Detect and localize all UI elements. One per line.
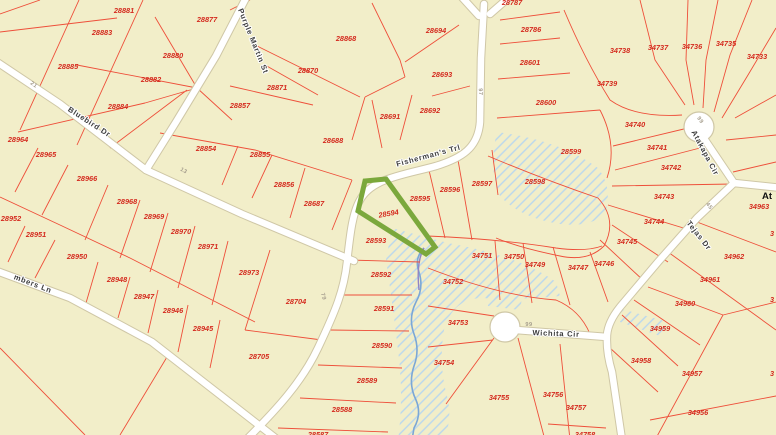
parcel-label-34758[interactable]: 34758 [575,430,596,435]
parcel-label-34749[interactable]: 34749 [525,260,546,269]
parcel-label-28588[interactable]: 28588 [331,405,353,414]
parcel-label-28786[interactable]: 28786 [520,25,542,34]
parcel-label-28870[interactable]: 28870 [297,66,318,75]
parcel-label-28951[interactable]: 28951 [25,230,46,239]
parcel-label-34956[interactable]: 34956 [688,408,709,417]
parcel-label-28965[interactable]: 28965 [35,150,57,159]
parcel-label-34756[interactable]: 34756 [543,390,564,399]
parcel-label-34738[interactable]: 34738 [610,46,631,55]
parcel-label-28883[interactable]: 28883 [91,28,112,37]
parcel-label-34751[interactable]: 34751 [472,251,492,260]
road-number-label: 99 [525,322,532,328]
parcel-label-28880[interactable]: 28880 [162,51,183,60]
parcel-label-28966[interactable]: 28966 [76,174,98,183]
parcel-label-34743[interactable]: 34743 [654,192,674,201]
parcel-label-28857[interactable]: 28857 [229,101,251,110]
parcel-label-28855[interactable]: 28855 [249,150,271,159]
area-labels-layer: At [762,191,773,202]
parcel-label-28694[interactable]: 28694 [425,26,446,35]
parcel-label-28598[interactable]: 28598 [524,177,546,186]
parcel-label-28971[interactable]: 28971 [197,242,218,251]
parcel-label-34733[interactable]: 34733 [747,52,767,61]
parcel-label-28601[interactable]: 28601 [519,58,540,67]
parcel-label-28947[interactable]: 28947 [133,292,155,301]
parcel-label-28885[interactable]: 28885 [57,62,79,71]
parcel-label-28691[interactable]: 28691 [379,112,400,121]
parcel-label-34960[interactable]: 34960 [675,299,695,308]
road-number-label: 97 [477,88,483,96]
parcel-label-28968[interactable]: 28968 [116,197,138,206]
parcel-label-34754[interactable]: 34754 [434,358,454,367]
parcel-label-34747[interactable]: 34747 [568,263,589,272]
parcel-label-28964[interactable]: 28964 [7,135,28,144]
parcel-label-28596[interactable]: 28596 [439,185,461,194]
parcel-label-34958[interactable]: 34958 [631,356,652,365]
parcel-label-28882[interactable]: 28882 [140,75,161,84]
parcel-label-28881[interactable]: 28881 [113,6,134,15]
edge-partial-parcel-label: 3 [770,229,774,238]
parcel-label-28950[interactable]: 28950 [66,252,87,261]
parcel-label-34957[interactable]: 34957 [682,369,703,378]
parcel-label-34739[interactable]: 34739 [597,79,618,88]
parcel-label-28592[interactable]: 28592 [370,270,391,279]
parcel-label-28687[interactable]: 28687 [303,199,325,208]
area-name-label: At [762,191,773,202]
parcel-label-34737[interactable]: 34737 [648,43,669,52]
parcel-label-34740[interactable]: 34740 [625,120,645,129]
parcel-label-28970[interactable]: 28970 [170,227,191,236]
parcel-label-34961[interactable]: 34961 [700,275,720,284]
parcel-label-28688[interactable]: 28688 [322,136,344,145]
wichita-culdesac-fill [493,315,517,339]
parcel-label-28704[interactable]: 28704 [285,297,306,306]
edge-partial-parcel-label: 3 [770,369,774,378]
parcel-label-28884[interactable]: 28884 [107,102,128,111]
parcel-label-34753[interactable]: 34753 [448,318,468,327]
parcel-label-28877[interactable]: 28877 [196,15,218,24]
parcel-label-28595[interactable]: 28595 [409,194,431,203]
parcel-label-28787[interactable]: 28787 [501,0,523,7]
parcel-label-28868[interactable]: 28868 [335,34,357,43]
parcel-label-28597[interactable]: 28597 [471,179,493,188]
parcel-label-34962[interactable]: 34962 [724,252,744,261]
map-viewport[interactable]: 2888128877288832888028885288822888428857… [0,0,776,435]
street-label: Wichita Cir [532,328,580,339]
parcel-label-28856[interactable]: 28856 [273,180,295,189]
parcel-label-28952[interactable]: 28952 [0,214,21,223]
parcel-label-34963[interactable]: 34963 [749,202,769,211]
parcel-label-28969[interactable]: 28969 [143,212,165,221]
parcel-label-28692[interactable]: 28692 [419,106,440,115]
parcel-label-28591[interactable]: 28591 [373,304,394,313]
parcel-label-34752[interactable]: 34752 [443,277,463,286]
parcel-label-28599[interactable]: 28599 [560,147,582,156]
parcel-label-28871[interactable]: 28871 [266,83,287,92]
parcel-label-28593[interactable]: 28593 [365,236,386,245]
parcel-label-34741[interactable]: 34741 [647,143,667,152]
parcel-label-28946[interactable]: 28946 [162,306,184,315]
parcel-label-28600[interactable]: 28600 [535,98,556,107]
parcel-label-28948[interactable]: 28948 [106,275,128,284]
parcel-label-34755[interactable]: 34755 [489,393,510,402]
parcel-label-34750[interactable]: 34750 [504,252,524,261]
parcel-label-28589[interactable]: 28589 [356,376,378,385]
parcel-label-34735[interactable]: 34735 [716,39,737,48]
parcel-label-28693[interactable]: 28693 [431,70,452,79]
parcel-label-28854[interactable]: 28854 [195,144,216,153]
parcel-label-28590[interactable]: 28590 [371,341,392,350]
parcel-label-34744[interactable]: 34744 [644,217,664,226]
parcel-label-34959[interactable]: 34959 [650,324,671,333]
parcel-label-34746[interactable]: 34746 [594,259,615,268]
parcel-label-28945[interactable]: 28945 [192,324,214,333]
parcel-label-34742[interactable]: 34742 [661,163,681,172]
parcel-label-34736[interactable]: 34736 [682,42,703,51]
parcel-map-canvas[interactable]: 2888128877288832888028885288822888428857… [0,0,776,435]
parcel-label-28705[interactable]: 28705 [248,352,270,361]
parcel-label-34745[interactable]: 34745 [617,237,638,246]
parcel-label-28973[interactable]: 28973 [238,268,259,277]
edge-partial-parcel-label: 3 [770,295,774,304]
parcel-label-28587[interactable]: 28587 [307,430,329,435]
parcel-label-34757[interactable]: 34757 [566,403,587,412]
